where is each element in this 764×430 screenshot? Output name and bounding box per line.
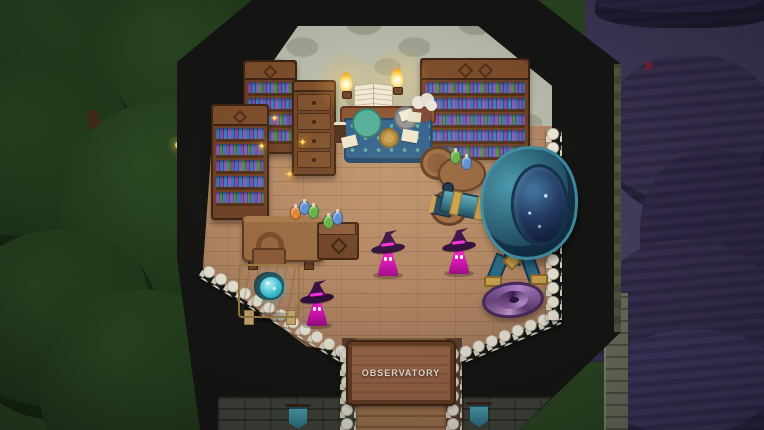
supply-chest[interactable] xyxy=(317,222,359,260)
sparkle-icon: ✦ xyxy=(298,136,307,149)
tube-gold-band xyxy=(449,191,463,216)
banner-rod xyxy=(285,404,311,407)
crystal-map xyxy=(258,275,284,300)
chest-motif xyxy=(331,238,348,255)
book-row xyxy=(425,98,525,112)
scrying-table[interactable] xyxy=(238,264,300,318)
purple-tree-canopy xyxy=(595,0,764,28)
witch-eye xyxy=(318,307,321,311)
witch-eye xyxy=(455,255,458,259)
astronomer-hair xyxy=(426,100,437,111)
paper xyxy=(401,129,419,144)
building-edge-stones xyxy=(614,64,621,332)
astronomer[interactable] xyxy=(400,98,434,128)
sparkle-icon: ✦ xyxy=(257,140,266,153)
game-viewport: ✦ ✦ ✦ ✦ xyxy=(0,0,764,430)
shelf-motif xyxy=(478,63,494,79)
shelf-motif xyxy=(458,63,474,79)
potion-bottle xyxy=(332,211,343,225)
purple-tree-canopy xyxy=(605,330,764,430)
book-row xyxy=(425,82,525,96)
drawer xyxy=(297,151,331,168)
bookshelf-left-front[interactable] xyxy=(211,104,269,220)
map-circle-teal xyxy=(352,108,382,138)
book-row xyxy=(216,160,264,174)
paper xyxy=(408,111,422,122)
witch-eye xyxy=(384,257,387,261)
banner-cloth xyxy=(470,405,488,427)
book-row xyxy=(216,176,264,190)
telescope-bell xyxy=(474,141,583,265)
witch-creature[interactable] xyxy=(300,282,334,328)
sign-label: OBSERVATORY xyxy=(362,368,441,378)
drawer xyxy=(297,113,331,130)
teal-banner xyxy=(285,402,311,430)
book-row xyxy=(216,192,264,206)
telescope-lens xyxy=(509,163,570,247)
sparkle-icon: ✦ xyxy=(285,168,294,181)
book-row xyxy=(425,114,525,128)
banner-rod xyxy=(466,402,492,405)
observatory-sign: OBSERVATORY xyxy=(348,342,454,404)
book-row xyxy=(248,82,292,96)
witch-creature[interactable] xyxy=(442,230,476,276)
shelf-motif xyxy=(263,65,277,79)
witch-eye xyxy=(313,307,316,311)
sparkle-icon: ✦ xyxy=(270,112,279,125)
witch-eye xyxy=(460,255,463,259)
witch-eye xyxy=(389,257,392,261)
teal-banner xyxy=(466,400,492,428)
compass xyxy=(379,128,399,148)
potion-bottle xyxy=(308,205,319,219)
shelf-motif xyxy=(233,110,247,124)
telescope-foot xyxy=(530,274,548,285)
witch-creature[interactable] xyxy=(371,232,405,278)
berry-light xyxy=(645,62,653,70)
banner-cloth xyxy=(289,407,307,429)
